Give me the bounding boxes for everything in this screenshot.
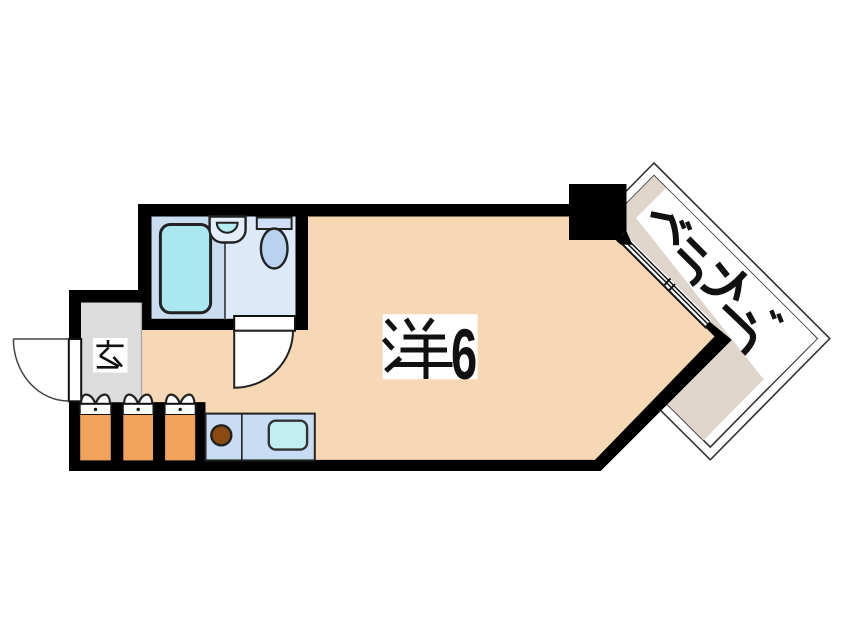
svg-text:6: 6 — [451, 314, 477, 394]
